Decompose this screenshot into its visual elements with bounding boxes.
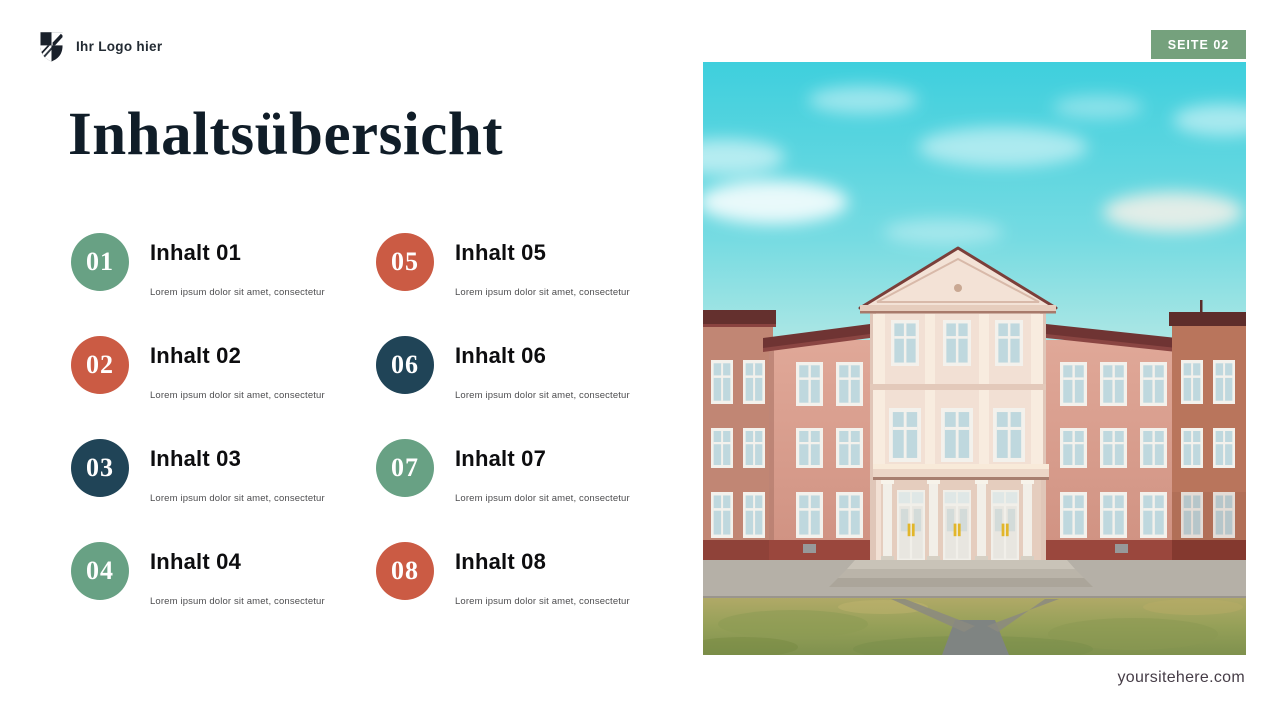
item-title: Inhalt 01 (150, 241, 325, 264)
item-number-badge: 07 (376, 439, 434, 497)
page-number-badge: SEITE 02 (1151, 30, 1246, 59)
item-number-badge: 04 (71, 542, 129, 600)
items-column-left: 01 Inhalt 01 Lorem ipsum dolor sit amet,… (71, 233, 381, 645)
item-title: Inhalt 03 (150, 447, 325, 470)
item-title: Inhalt 08 (455, 550, 630, 573)
list-item: 02 Inhalt 02 Lorem ipsum dolor sit amet,… (71, 336, 381, 394)
item-title: Inhalt 04 (150, 550, 325, 573)
item-number-badge: 02 (71, 336, 129, 394)
list-item: 03 Inhalt 03 Lorem ipsum dolor sit amet,… (71, 439, 381, 497)
item-title: Inhalt 06 (455, 344, 630, 367)
slide-title: Inhaltsübersicht (68, 100, 503, 170)
item-title: Inhalt 05 (455, 241, 630, 264)
item-number-badge: 05 (376, 233, 434, 291)
item-subtitle: Lorem ipsum dolor sit amet, consectetur (455, 493, 630, 504)
item-subtitle: Lorem ipsum dolor sit amet, consectetur (150, 493, 325, 504)
item-subtitle: Lorem ipsum dolor sit amet, consectetur (455, 390, 630, 401)
list-item: 06 Inhalt 06 Lorem ipsum dolor sit amet,… (376, 336, 686, 394)
logo: Ihr Logo hier (38, 31, 162, 62)
item-subtitle: Lorem ipsum dolor sit amet, consectetur (150, 390, 325, 401)
item-subtitle: Lorem ipsum dolor sit amet, consectetur (455, 596, 630, 607)
item-subtitle: Lorem ipsum dolor sit amet, consectetur (150, 287, 325, 298)
item-title: Inhalt 07 (455, 447, 630, 470)
item-title: Inhalt 02 (150, 344, 325, 367)
item-number-badge: 08 (376, 542, 434, 600)
website-footer: yoursitehere.com (1117, 669, 1245, 687)
list-item: 07 Inhalt 07 Lorem ipsum dolor sit amet,… (376, 439, 686, 497)
item-number-badge: 03 (71, 439, 129, 497)
list-item: 05 Inhalt 05 Lorem ipsum dolor sit amet,… (376, 233, 686, 291)
list-item: 01 Inhalt 01 Lorem ipsum dolor sit amet,… (71, 233, 381, 291)
item-number-badge: 06 (376, 336, 434, 394)
list-item: 04 Inhalt 04 Lorem ipsum dolor sit amet,… (71, 542, 381, 600)
item-subtitle: Lorem ipsum dolor sit amet, consectetur (150, 596, 325, 607)
item-subtitle: Lorem ipsum dolor sit amet, consectetur (455, 287, 630, 298)
item-number-badge: 01 (71, 233, 129, 291)
shield-icon (38, 31, 65, 62)
school-building-photo (703, 62, 1246, 655)
logo-text: Ihr Logo hier (76, 39, 162, 54)
items-column-right: 05 Inhalt 05 Lorem ipsum dolor sit amet,… (376, 233, 686, 645)
list-item: 08 Inhalt 08 Lorem ipsum dolor sit amet,… (376, 542, 686, 600)
slide: Ihr Logo hier SEITE 02 Inhaltsübersicht … (0, 0, 1280, 720)
